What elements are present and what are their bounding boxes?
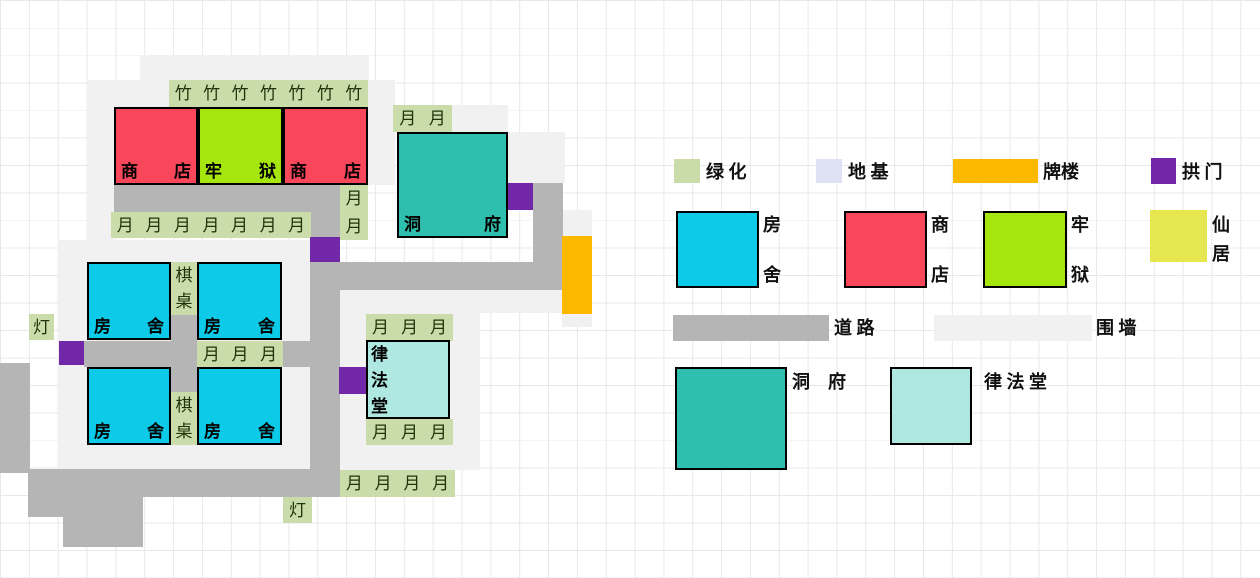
legend-swatch-arch — [1151, 158, 1176, 184]
legend-label-paifang: 牌楼 — [1043, 162, 1079, 184]
legend-swatch-foundation — [816, 159, 842, 183]
legend-swatch-house — [676, 211, 759, 288]
legend-label-shop: 店 — [931, 266, 949, 284]
legend-swatch-xianju — [1150, 210, 1207, 262]
legend: 绿 化地 基牌楼拱 门房舍商店牢狱仙居道 路围 墙洞 府律 法 堂 — [0, 0, 1260, 578]
legend-label-dongfu: 洞 府 — [792, 372, 846, 394]
legend-swatch-paifang — [953, 159, 1038, 183]
legend-label-house: 舍 — [763, 266, 781, 284]
legend-label-xianju: 居 — [1212, 245, 1230, 263]
legend-label-foundation: 地 基 — [848, 162, 889, 184]
legend-swatch-greenery — [674, 159, 700, 183]
legend-swatch-dongfu — [675, 367, 787, 470]
legend-swatch-prison — [983, 211, 1067, 288]
legend-label-wall: 围 墙 — [1096, 318, 1137, 340]
legend-label-xianju: 仙 — [1212, 216, 1230, 234]
legend-label-shop: 商 — [931, 216, 949, 234]
legend-swatch-wall — [934, 315, 1092, 341]
legend-label-greenery: 绿 化 — [706, 162, 747, 184]
legend-label-arch: 拱 门 — [1182, 162, 1223, 184]
legend-label-road: 道 路 — [834, 318, 875, 340]
legend-label-house: 房 — [763, 216, 781, 234]
legend-swatch-lvfatang — [890, 367, 972, 445]
legend-label-prison: 牢 — [1071, 216, 1089, 234]
legend-swatch-shop — [844, 211, 927, 288]
legend-swatch-road — [673, 315, 829, 341]
legend-label-lvfatang: 律 法 堂 — [984, 372, 1047, 394]
village-layout-blueprint: 竹竹竹竹竹竹竹月月月月月月月月月月月棋桌棋桌月月月月月月月月月月月月月灯灯商店牢… — [0, 0, 1260, 578]
legend-label-prison: 狱 — [1071, 266, 1089, 284]
